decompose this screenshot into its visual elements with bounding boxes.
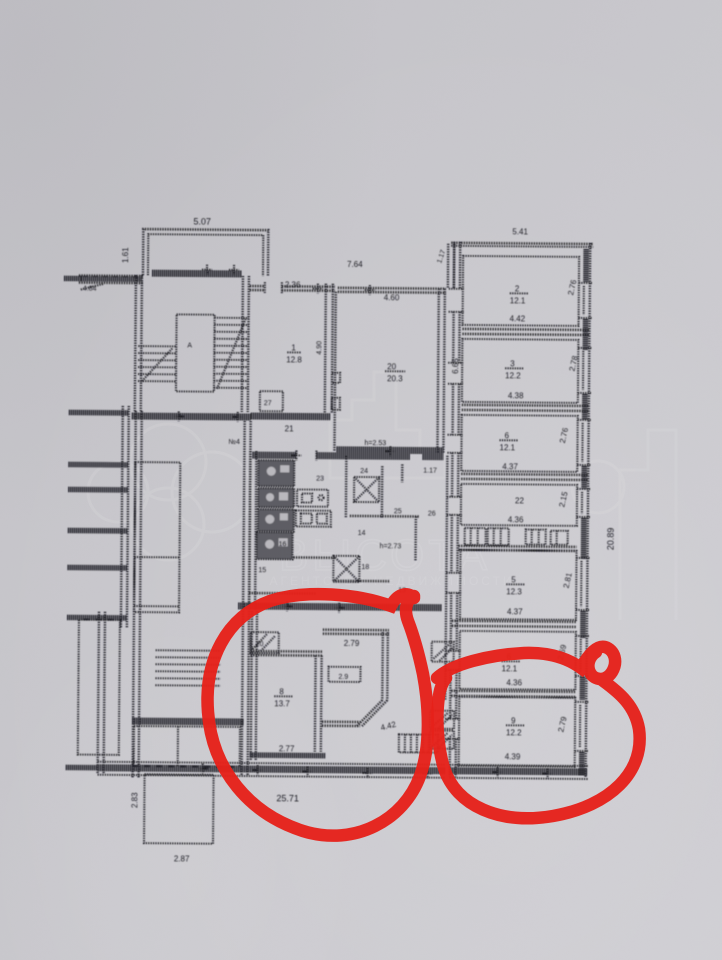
svg-text:2.79: 2.79 (344, 639, 360, 648)
svg-text:3: 3 (510, 359, 515, 368)
svg-text:27: 27 (264, 400, 272, 407)
svg-text:h=2.73: h=2.73 (380, 543, 402, 550)
svg-text:6: 6 (505, 431, 510, 440)
svg-text:21: 21 (285, 424, 295, 433)
svg-text:23: 23 (316, 476, 324, 483)
svg-text:4.37: 4.37 (502, 462, 518, 471)
svg-text:12.8: 12.8 (286, 355, 302, 364)
svg-text:5.41: 5.41 (512, 227, 528, 236)
svg-text:12.3: 12.3 (506, 587, 522, 596)
svg-text:1.17: 1.17 (423, 468, 437, 475)
svg-text:4.37: 4.37 (507, 607, 523, 616)
svg-text:25.71: 25.71 (276, 793, 299, 803)
svg-text:1: 1 (291, 343, 296, 352)
svg-text:18: 18 (361, 564, 369, 571)
svg-text:16: 16 (279, 541, 287, 548)
svg-text:АГЕНТСТВО НЕДВИЖИМОСТИ: АГЕНТСТВО НЕДВИЖИМОСТИ (269, 574, 514, 588)
svg-text:22: 22 (515, 496, 525, 505)
svg-text:4.42: 4.42 (510, 314, 526, 323)
svg-text:2: 2 (515, 284, 520, 293)
svg-text:4.60: 4.60 (384, 293, 400, 302)
svg-text:4.84: 4.84 (83, 286, 97, 293)
svg-text:4.38: 4.38 (508, 391, 524, 400)
svg-text:5.07: 5.07 (193, 217, 211, 227)
svg-text:2.36: 2.36 (285, 280, 301, 289)
svg-text:24: 24 (360, 468, 368, 475)
svg-text:8: 8 (279, 687, 284, 696)
svg-text:6.65: 6.65 (451, 358, 460, 374)
svg-text:12.1: 12.1 (501, 664, 517, 673)
svg-text:14: 14 (358, 530, 366, 537)
svg-text:2.9: 2.9 (338, 674, 348, 681)
svg-text:12.2: 12.2 (505, 371, 521, 380)
svg-text:№4: №4 (228, 439, 240, 446)
svg-text:12.2: 12.2 (506, 728, 522, 737)
svg-text:9: 9 (511, 716, 516, 725)
svg-text:1.61: 1.61 (121, 247, 130, 263)
svg-text:h=2.53: h=2.53 (364, 440, 386, 447)
svg-text:26: 26 (428, 511, 436, 518)
svg-text:7.64: 7.64 (347, 260, 363, 269)
svg-text:4.36: 4.36 (508, 515, 524, 524)
svg-text:2.87: 2.87 (174, 854, 190, 863)
svg-text:20: 20 (387, 362, 397, 371)
svg-text:20.89: 20.89 (606, 528, 616, 551)
svg-text:15: 15 (258, 567, 266, 574)
svg-text:2.83: 2.83 (130, 792, 139, 808)
svg-text:4.39: 4.39 (505, 752, 521, 761)
svg-text:20.3: 20.3 (387, 374, 403, 383)
svg-text:12.1: 12.1 (510, 296, 526, 305)
svg-text:12.1: 12.1 (499, 443, 515, 452)
svg-text:2.77: 2.77 (279, 744, 295, 753)
svg-text:5: 5 (511, 575, 516, 584)
svg-text:4.36: 4.36 (506, 678, 522, 687)
svg-text:25: 25 (394, 508, 402, 515)
svg-text:13.7: 13.7 (274, 699, 290, 708)
svg-text:А: А (187, 342, 192, 349)
svg-text:4.90: 4.90 (316, 341, 323, 355)
